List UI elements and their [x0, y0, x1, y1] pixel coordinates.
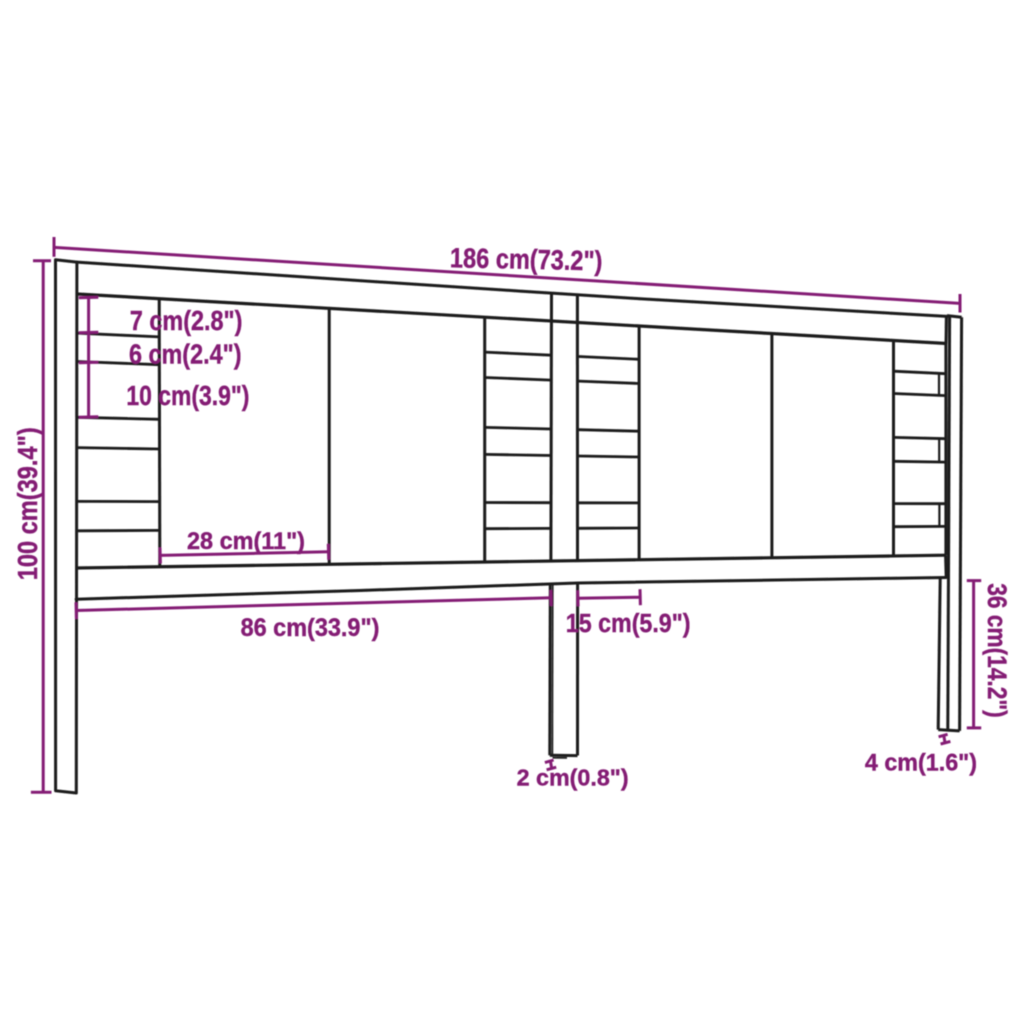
svg-text:4 cm(1.6"): 4 cm(1.6")	[865, 750, 977, 777]
svg-text:36 cm(14.2"): 36 cm(14.2")	[982, 583, 1012, 718]
svg-text:6 cm(2.4"): 6 cm(2.4")	[129, 339, 242, 370]
svg-text:2 cm(0.8"): 2 cm(0.8")	[517, 764, 629, 790]
svg-text:10 cm(3.9"): 10 cm(3.9")	[126, 380, 249, 411]
svg-text:86 cm(33.9"): 86 cm(33.9")	[241, 614, 380, 642]
svg-text:100 cm(39.4"): 100 cm(39.4")	[12, 427, 43, 580]
svg-text:7 cm(2.8"): 7 cm(2.8")	[130, 305, 243, 336]
svg-text:186 cm(73.2"): 186 cm(73.2")	[450, 242, 603, 276]
svg-text:28 cm(11"): 28 cm(11")	[187, 529, 305, 555]
svg-text:15 cm(5.9"): 15 cm(5.9")	[566, 608, 691, 638]
